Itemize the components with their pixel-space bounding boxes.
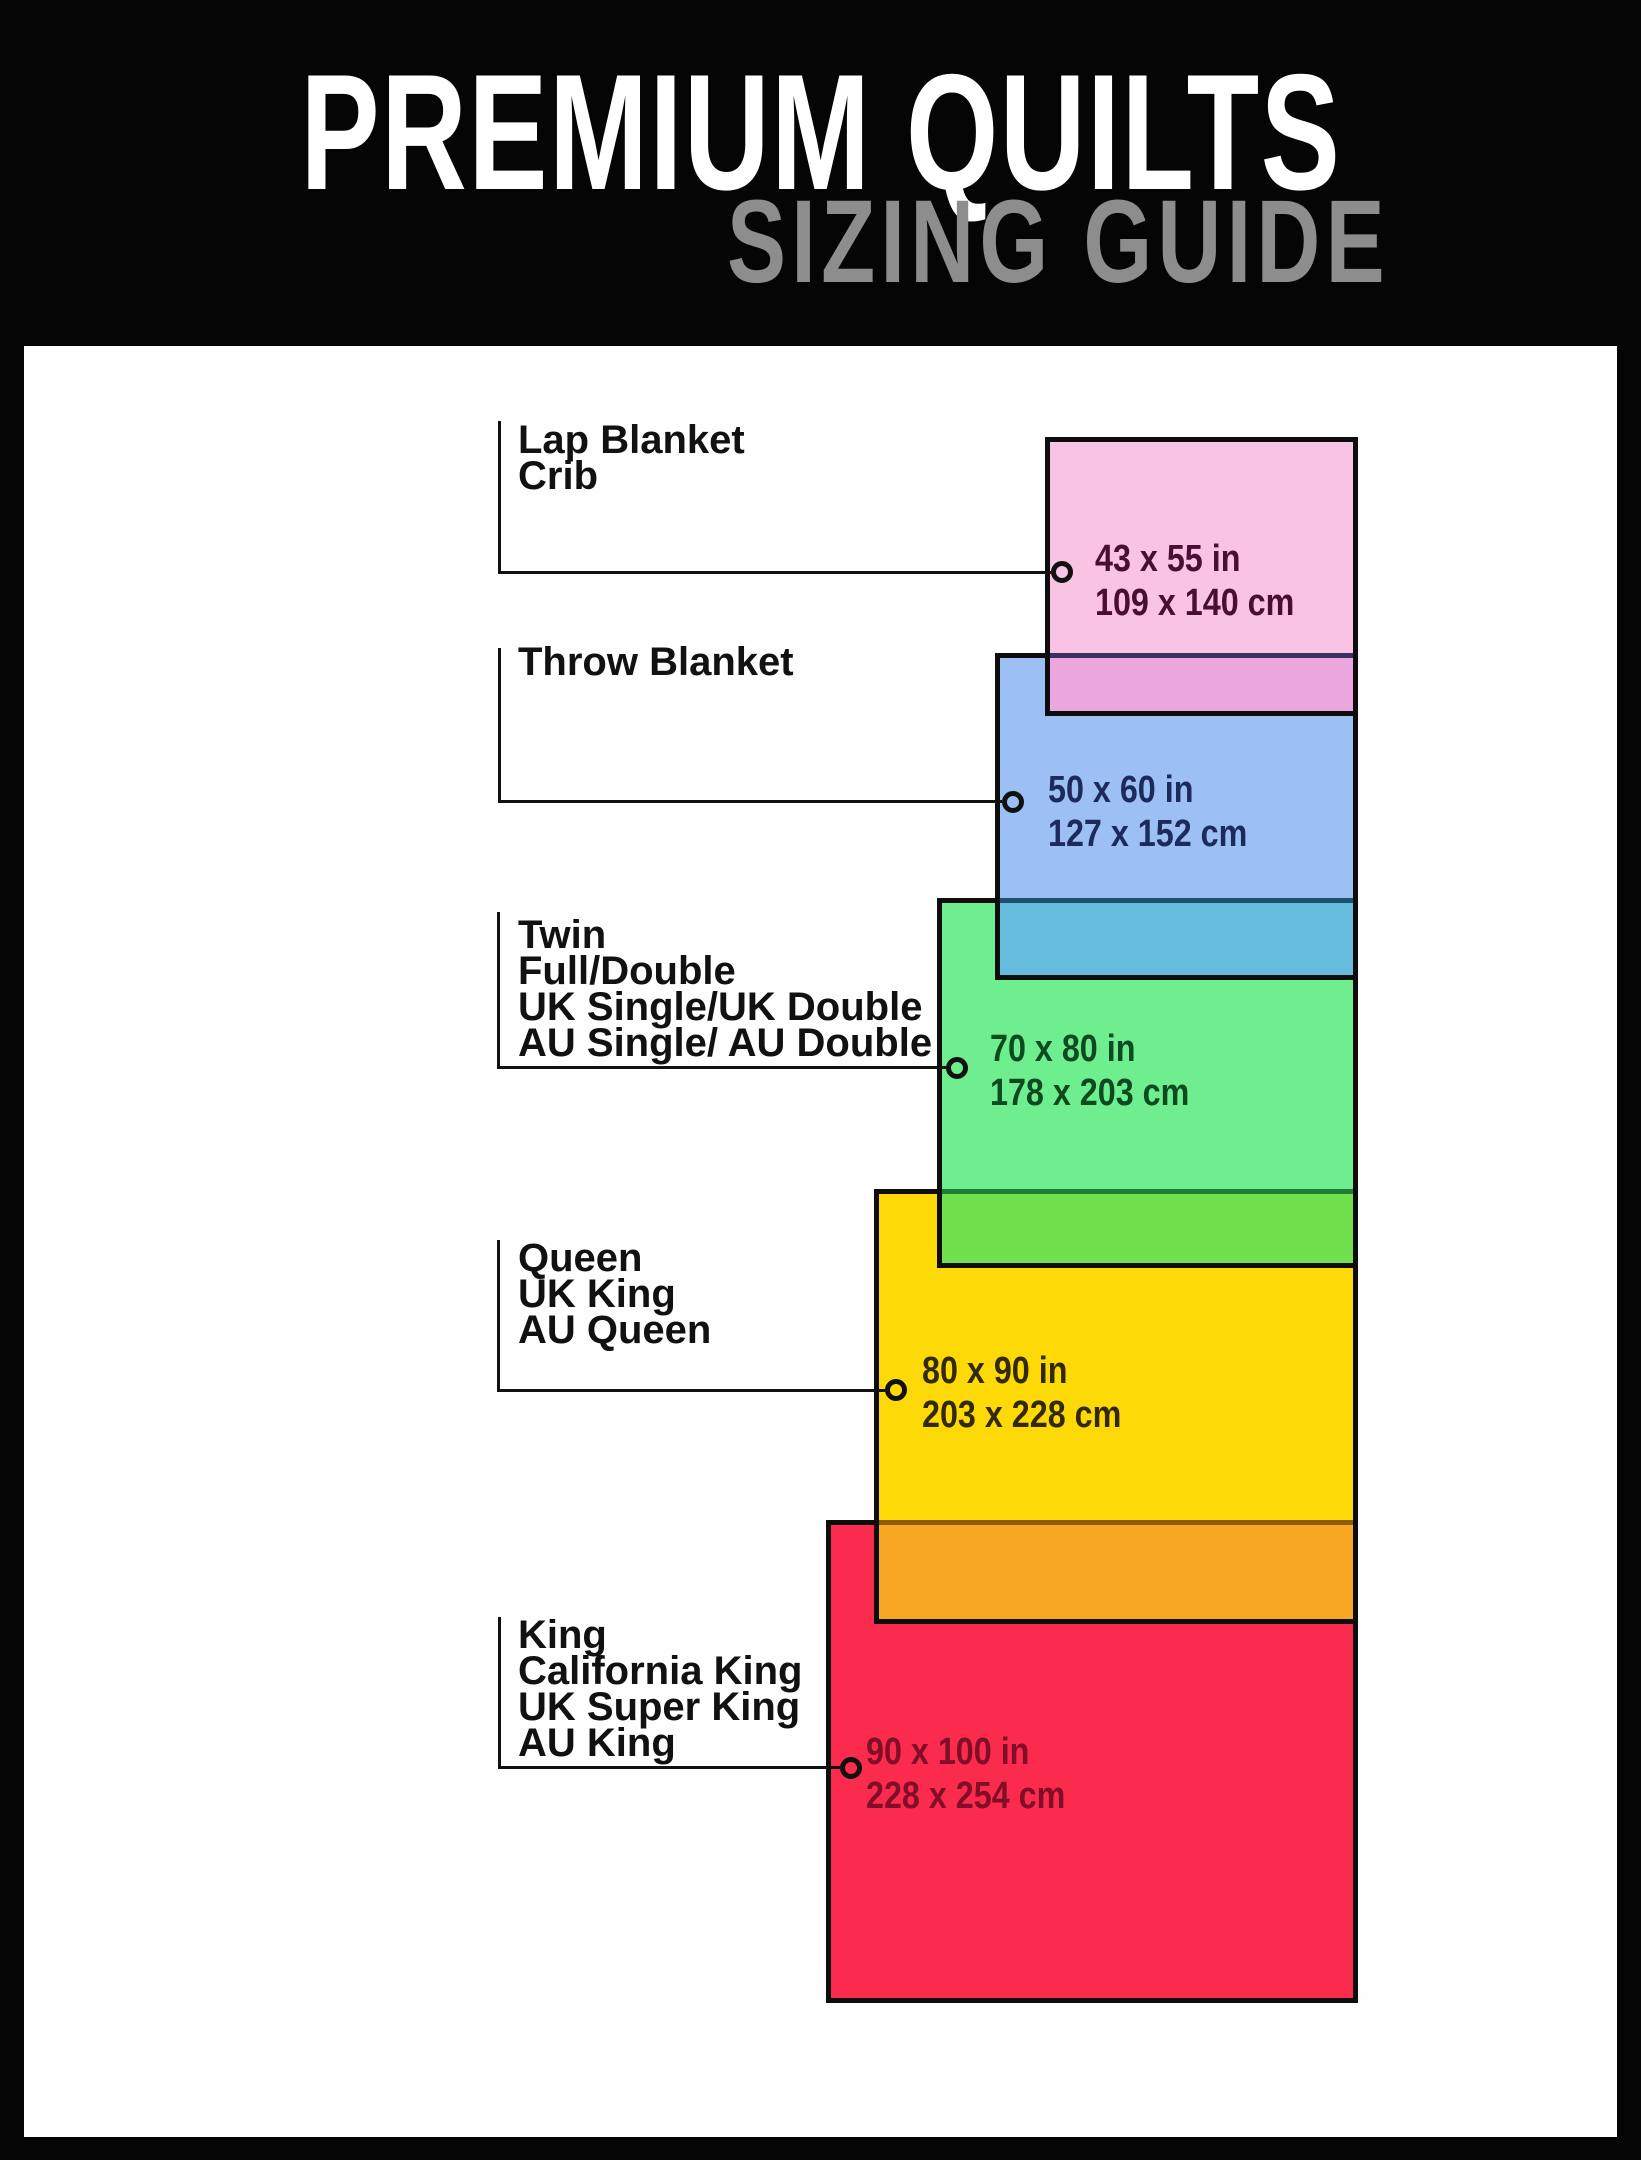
label-throw-blanket: Throw Blanket [518, 644, 794, 680]
label-line: AU Queen [518, 1312, 711, 1348]
dimension-in: 43 x 55 in [1095, 537, 1294, 581]
subtitle-wrap: SIZING GUIDE [506, 183, 1390, 301]
content-panel [24, 346, 1617, 2137]
label-line: UK Single/UK Double [518, 989, 932, 1025]
page-subtitle: SIZING GUIDE [727, 183, 1390, 301]
label-queen: Queen UK King AU Queen [518, 1240, 711, 1348]
label-line: UK King [518, 1276, 711, 1312]
sizing-guide-infographic: PREMIUM QUILTS SIZING GUIDE Lap Blanket … [0, 0, 1641, 2160]
label-line: Twin [518, 917, 932, 953]
leader-line-lap [498, 421, 501, 574]
dimensions-queen: 80 x 90 in 203 x 228 cm [922, 1349, 1121, 1437]
dimension-cm: 127 x 152 cm [1048, 812, 1247, 856]
dimensions-lap-blanket: 43 x 55 in 109 x 140 cm [1095, 537, 1294, 625]
label-line: AU King [518, 1725, 802, 1761]
label-line: Queen [518, 1240, 711, 1276]
dimension-cm: 109 x 140 cm [1095, 581, 1294, 625]
leader-line-throw [498, 648, 501, 803]
overlap-twin-queen [942, 1189, 1353, 1263]
label-king: King California King UK Super King AU Ki… [518, 1617, 802, 1761]
dimension-in: 50 x 60 in [1048, 768, 1247, 812]
label-lap-blanket: Lap Blanket Crib [518, 422, 745, 494]
overlap-lap-throw [1050, 653, 1353, 711]
leader-line-king [498, 1766, 840, 1769]
label-line: King [518, 1617, 802, 1653]
dimensions-throw-blanket: 50 x 60 in 127 x 152 cm [1048, 768, 1247, 856]
label-line: Full/Double [518, 953, 932, 989]
label-line: Throw Blanket [518, 644, 794, 680]
leader-line-queen [497, 1240, 500, 1392]
size-marker-dot-lap [1051, 561, 1073, 583]
overlap-throw-twin [1000, 898, 1353, 975]
dimension-in: 80 x 90 in [922, 1349, 1121, 1393]
label-line: California King [518, 1653, 802, 1689]
leader-line-queen [497, 1389, 885, 1392]
dimension-cm: 228 x 254 cm [866, 1774, 1065, 1818]
label-twin: Twin Full/Double UK Single/UK Double AU … [518, 917, 932, 1061]
leader-line-twin [497, 1066, 946, 1069]
leader-line-throw [498, 800, 1002, 803]
label-line: Lap Blanket [518, 422, 745, 458]
leader-line-lap [498, 571, 1051, 574]
label-line: Crib [518, 458, 745, 494]
size-marker-dot-throw [1002, 791, 1024, 813]
leader-line-king [498, 1617, 501, 1769]
dimension-in: 90 x 100 in [866, 1730, 1065, 1774]
dimensions-twin: 70 x 80 in 178 x 203 cm [990, 1027, 1189, 1115]
size-marker-dot-king [840, 1757, 862, 1779]
dimensions-king: 90 x 100 in 228 x 254 cm [866, 1730, 1065, 1818]
label-line: UK Super King [518, 1689, 802, 1725]
label-line: AU Single/ AU Double [518, 1025, 932, 1061]
dimension-cm: 203 x 228 cm [922, 1393, 1121, 1437]
leader-line-twin [497, 912, 500, 1069]
overlap-queen-king [879, 1520, 1353, 1619]
dimension-cm: 178 x 203 cm [990, 1071, 1189, 1115]
size-marker-dot-twin [946, 1057, 968, 1079]
dimension-in: 70 x 80 in [990, 1027, 1189, 1071]
size-marker-dot-queen [885, 1379, 907, 1401]
